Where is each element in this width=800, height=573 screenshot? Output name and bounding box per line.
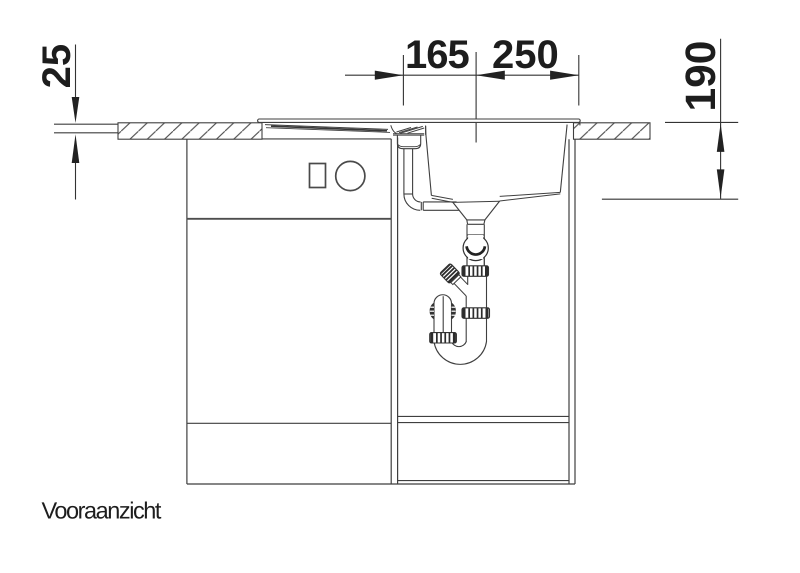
- svg-text:190: 190: [678, 41, 725, 112]
- svg-text:165: 165: [405, 33, 469, 77]
- svg-text:25: 25: [35, 44, 79, 89]
- svg-text:250: 250: [492, 33, 559, 77]
- svg-text:Vooraanzicht: Vooraanzicht: [42, 498, 162, 524]
